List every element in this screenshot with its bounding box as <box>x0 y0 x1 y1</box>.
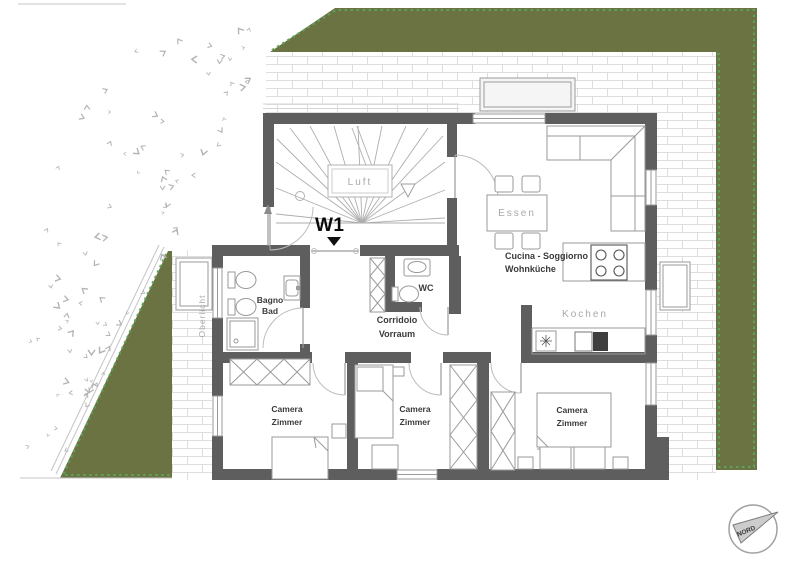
bedroom-right-label-line1: Camera <box>556 405 587 415</box>
bedroom-middle-label-line1: Camera <box>399 404 430 414</box>
bathroom-label-line2: Bad <box>262 306 278 316</box>
dining-label: Essen <box>498 208 536 219</box>
skylight-label: Oberlicht <box>197 294 207 337</box>
bedroom-left-label-line2: Zimmer <box>272 417 303 427</box>
wc-fixtures <box>392 259 430 302</box>
bedroom-right-label-line2: Zimmer <box>557 418 588 428</box>
terrace-planter <box>480 78 575 111</box>
unit-marker-triangle <box>327 237 341 246</box>
floor-plan-page: W1 Luft Bagno Bad Corridoio Vorraum WC C… <box>0 0 800 567</box>
corridor-label-line2: Vorraum <box>379 329 415 339</box>
bedroom-left-label-line1: Camera <box>271 404 302 414</box>
bedroom-middle-furniture <box>355 365 515 470</box>
stair-void-label: Luft <box>348 177 373 188</box>
wc-label: WC <box>419 283 434 293</box>
grass-west-slope <box>60 251 173 478</box>
living-label-line1: Cucina - Soggiorno <box>505 251 588 261</box>
skylight-east <box>660 262 690 310</box>
corridor-label-line1: Corridoio <box>377 315 418 325</box>
corridor-closet <box>370 258 385 312</box>
living-label-line2: Wohnküche <box>505 264 556 274</box>
bedroom-middle-label-line2: Zimmer <box>400 417 431 427</box>
stair-direction-arrow <box>401 184 415 197</box>
stairs <box>276 126 445 223</box>
floor-plan-drawing: W1 Luft Bagno Bad Corridoio Vorraum WC C… <box>0 0 800 567</box>
cooking-label: Kochen <box>562 309 608 320</box>
north-compass: NORD <box>729 505 778 553</box>
bathroom-label-line1: Bagno <box>257 295 283 305</box>
unit-label: W1 <box>315 215 345 236</box>
